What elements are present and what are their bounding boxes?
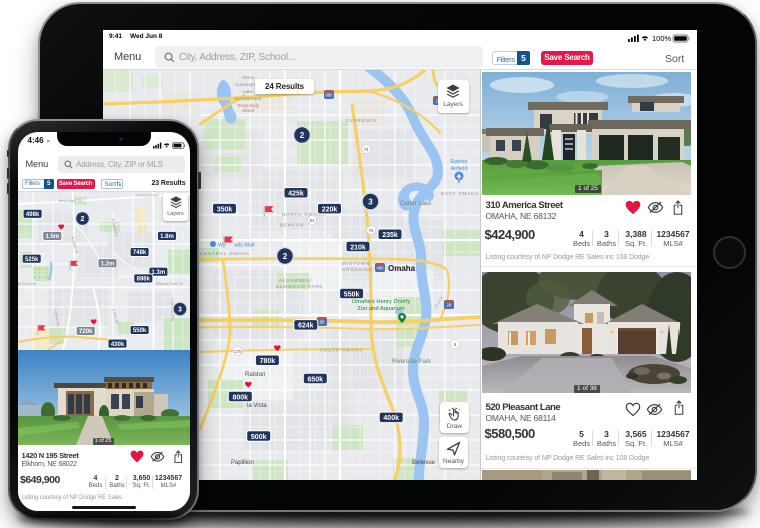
svg-text:3: 3 (178, 306, 182, 313)
svg-text:75: 75 (369, 228, 374, 233)
svg-text:80: 80 (320, 320, 325, 325)
svg-text:MIDTOWN: MIDTOWN (342, 261, 370, 266)
svg-text:Bellevue: Bellevue (412, 460, 436, 466)
svg-text:525k: 525k (25, 256, 39, 262)
svg-text:CROSSING: CROSSING (342, 267, 373, 272)
svg-text:la Vista: la Vista (247, 403, 267, 409)
svg-text:al Front Rd: al Front Rd (18, 282, 36, 286)
svg-text:University Ave: University Ave (136, 193, 159, 197)
svg-text:3: 3 (368, 198, 373, 207)
svg-text:2: 2 (80, 216, 84, 223)
svg-text:2: 2 (300, 131, 305, 140)
svg-text:Papillion: Papillion (231, 460, 254, 466)
svg-text:898k: 898k (136, 276, 150, 282)
svg-text:500k: 500k (251, 434, 267, 441)
svg-text:Mineral Front Rd: Mineral Front Rd (156, 282, 183, 286)
svg-text:Riverside Park: Riverside Park (392, 359, 432, 365)
svg-text:210k: 210k (350, 244, 366, 251)
svg-text:480: 480 (377, 266, 385, 271)
svg-text:498k: 498k (25, 212, 39, 218)
svg-text:680: 680 (326, 93, 334, 98)
svg-text:1.8m: 1.8m (160, 234, 174, 240)
svg-text:275: 275 (235, 349, 243, 354)
svg-text:ELMWOOD PARK: ELMWOOD PARK (276, 284, 323, 289)
svg-text:Zoo and Aquarium: Zoo and Aquarium (357, 306, 405, 312)
svg-text:We: We (218, 243, 226, 249)
svg-text:29: 29 (447, 303, 452, 308)
svg-text:CENTRAL OMAHA: CENTRAL OMAHA (200, 251, 250, 256)
svg-text:720k: 720k (79, 329, 93, 335)
svg-text:220k: 220k (322, 206, 338, 213)
svg-text:Lake: Lake (243, 89, 253, 94)
svg-text:235k: 235k (382, 232, 398, 239)
svg-text:780k: 780k (260, 358, 276, 365)
svg-text:SOUTH OMAHA: SOUTH OMAHA (320, 348, 363, 353)
svg-text:1.3m: 1.3m (151, 269, 165, 275)
svg-text:350k: 350k (217, 206, 233, 213)
svg-text:Omaha's Henry Doorly: Omaha's Henry Doorly (352, 299, 411, 305)
svg-text:Glenn: Glenn (242, 75, 255, 80)
svg-text:1.2m: 1.2m (100, 261, 114, 267)
svg-text:EAST OMAHA: EAST OMAHA (441, 191, 479, 196)
svg-text:FLORENCE: FLORENCE (346, 118, 377, 123)
svg-text:748k: 748k (132, 250, 146, 256)
svg-text:Campground: Campground (235, 96, 262, 101)
svg-text:Airfield: Airfield (451, 166, 468, 172)
svg-text:650k: 650k (308, 376, 324, 383)
svg-text:425k: 425k (288, 191, 304, 198)
svg-text:550k: 550k (132, 328, 146, 334)
svg-text:1.5m: 1.5m (45, 234, 59, 240)
svg-text:64: 64 (310, 218, 315, 223)
svg-text:75: 75 (364, 147, 369, 152)
svg-text:West Maple Rd: West Maple Rd (58, 199, 83, 203)
svg-text:550k: 550k (344, 291, 360, 298)
svg-text:430k: 430k (110, 341, 124, 347)
svg-text:BENSON: BENSON (280, 223, 304, 228)
svg-text:Ralston: Ralston (245, 372, 265, 378)
svg-text:624k: 624k (298, 323, 314, 330)
svg-text:Eppley: Eppley (451, 159, 468, 165)
svg-text:100%: 100% (652, 34, 672, 43)
svg-text:closed: closed (242, 108, 255, 113)
svg-text:ads Mall: ads Mall (234, 243, 254, 249)
svg-text:2: 2 (283, 252, 288, 261)
svg-text:AKSARBEN/: AKSARBEN/ (279, 278, 313, 283)
svg-text:Omaha: Omaha (388, 264, 416, 273)
svg-text:Carter Lake: Carter Lake (400, 201, 432, 207)
svg-text:800k: 800k (233, 394, 249, 401)
svg-text:400k: 400k (383, 415, 399, 422)
